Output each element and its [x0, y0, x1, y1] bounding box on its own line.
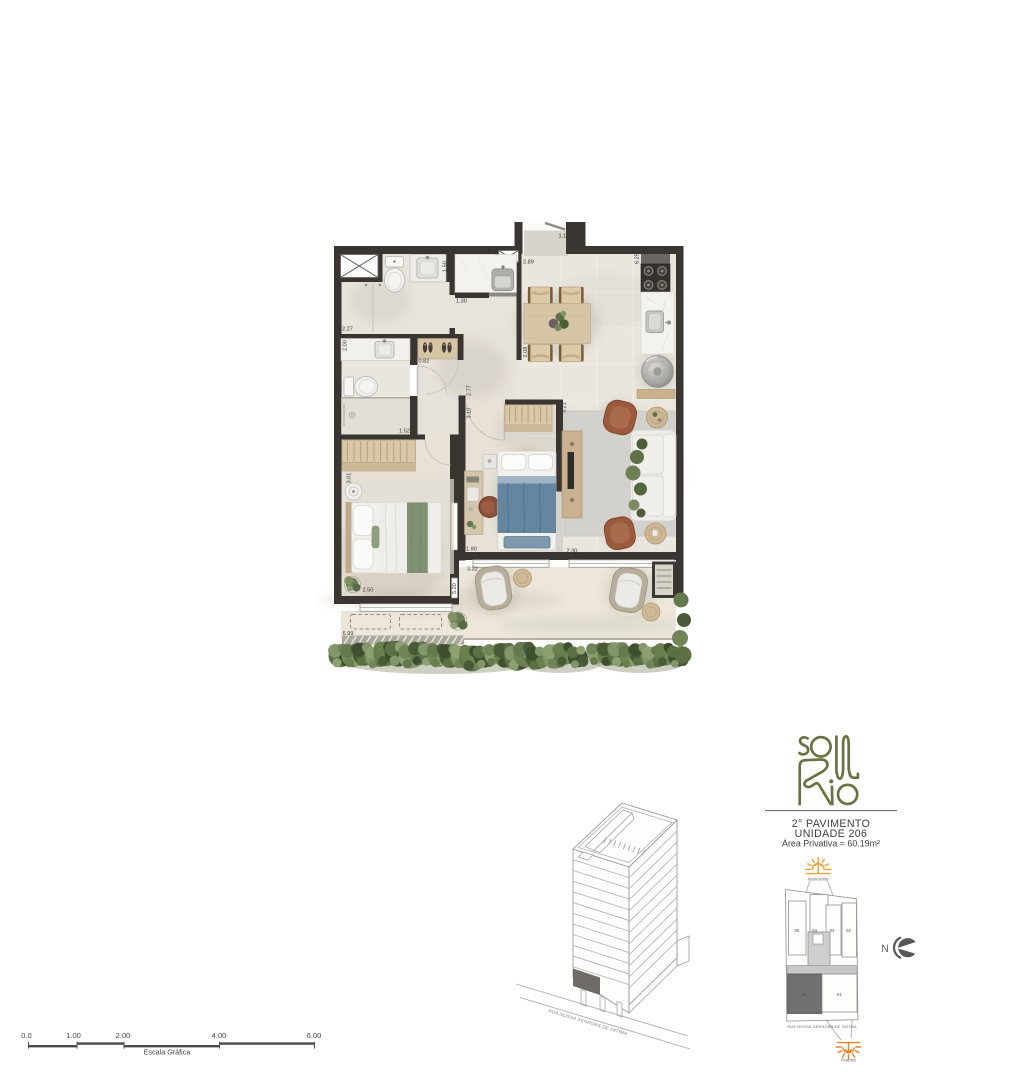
svg-text:2.89: 2.89 [523, 260, 534, 266]
svg-text:1.30: 1.30 [456, 299, 467, 305]
svg-text:5.20: 5.20 [452, 583, 458, 594]
svg-text:Nascente: Nascente [808, 877, 829, 883]
svg-text:1.12: 1.12 [559, 234, 570, 240]
svg-text:06: 06 [802, 992, 807, 997]
svg-text:Área Privativa = 60.19m²: Área Privativa = 60.19m² [782, 839, 880, 849]
svg-text:05: 05 [795, 928, 800, 933]
svg-text:RUA NOSSA SENHORA DE FATIMA: RUA NOSSA SENHORA DE FATIMA [548, 1008, 628, 1036]
svg-text:1.00: 1.00 [66, 1031, 81, 1040]
svg-text:1.90: 1.90 [466, 547, 477, 553]
svg-text:3.01: 3.01 [347, 473, 353, 484]
svg-text:2.30: 2.30 [567, 549, 578, 555]
svg-text:6.99: 6.99 [343, 631, 354, 637]
svg-text:01: 01 [837, 992, 842, 997]
svg-text:03: 03 [830, 928, 835, 933]
svg-text:3.10: 3.10 [467, 408, 473, 419]
svg-text:RUA NOSSA SENHORA DE FATIMA: RUA NOSSA SENHORA DE FATIMA [787, 1024, 857, 1029]
svg-text:Poente: Poente [841, 1058, 857, 1064]
svg-text:0.0: 0.0 [21, 1031, 32, 1040]
svg-text:2.00: 2.00 [116, 1031, 131, 1040]
svg-text:2.00: 2.00 [343, 340, 349, 351]
svg-text:04: 04 [812, 928, 817, 933]
svg-text:2.27: 2.27 [342, 327, 353, 333]
svg-text:3.21: 3.21 [562, 402, 568, 413]
svg-text:1.50: 1.50 [443, 261, 449, 272]
svg-text:2.50: 2.50 [363, 588, 374, 594]
svg-text:6.00: 6.00 [307, 1031, 322, 1040]
svg-text:2.08: 2.08 [523, 347, 529, 358]
svg-text:1.52: 1.52 [399, 429, 410, 435]
svg-text:2.77: 2.77 [467, 385, 473, 396]
svg-text:0.82: 0.82 [419, 359, 430, 365]
svg-text:02: 02 [846, 928, 851, 933]
svg-text:4.00: 4.00 [212, 1031, 227, 1040]
svg-text:Escala Gráfica: Escala Gráfica [144, 1048, 191, 1057]
svg-text:N: N [881, 943, 889, 955]
svg-text:6.25: 6.25 [635, 253, 641, 264]
svg-text:3.32: 3.32 [467, 567, 478, 573]
